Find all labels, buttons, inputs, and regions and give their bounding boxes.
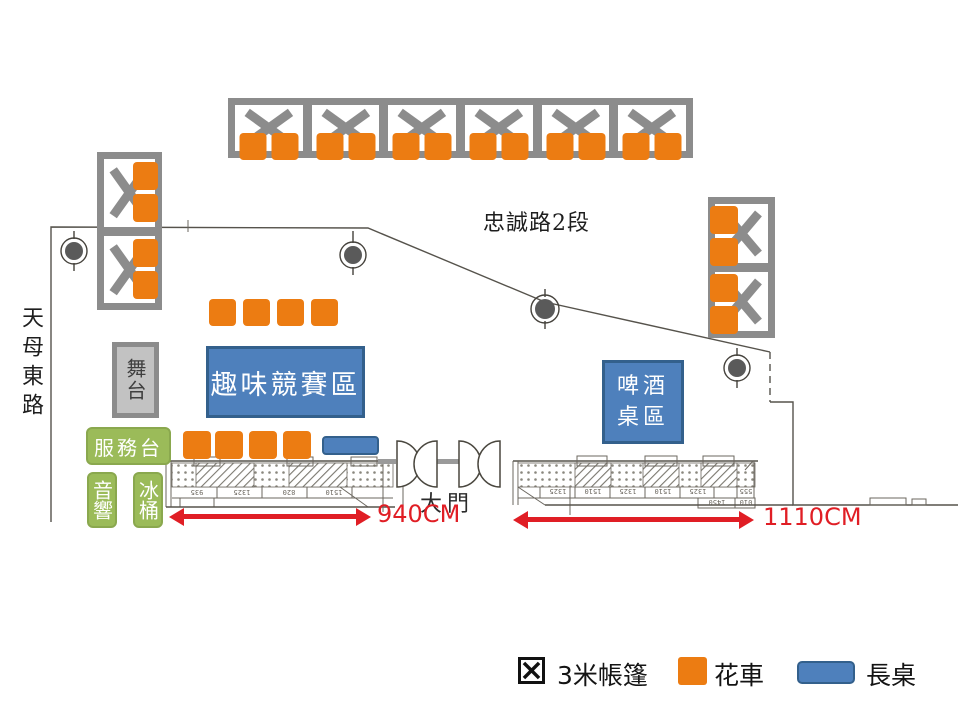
flower-cart [215,431,243,459]
stage-box: 舞台 [112,342,159,418]
scan-number: 1510 [655,487,672,495]
service-desk-box: 服務台 [86,427,171,465]
flower-cart [655,133,682,160]
legend-flower-cart-label: 花車 [714,656,764,692]
flower-cart-pair [239,133,298,160]
scan-number: 935 [191,488,204,496]
tent [104,159,155,227]
scan-number: 820 [283,488,296,496]
ice-bucket-box: 冰桶 [133,472,163,528]
ice-bucket-label: 冰桶 [134,480,163,520]
flower-cart [623,133,650,160]
flower-cart [425,133,452,160]
measure-label-left: 940CM [377,500,460,528]
flower-cart [501,133,528,160]
measure-arrow-right [528,517,739,522]
legend-long-table-icon [797,661,855,684]
flower-cart [243,299,270,326]
tent [312,105,380,151]
flower-cart [209,299,236,326]
flower-cart [271,133,298,160]
flower-cart [311,299,338,326]
flower-cart [183,431,211,459]
flower-cart [239,133,266,160]
scan-number: 1450 [709,498,726,506]
tent [542,105,610,151]
flower-cart [348,133,375,160]
tent [715,204,768,263]
tree [724,348,750,388]
beer-zone-box: 啤酒 桌區 [602,360,684,444]
flower-cart [133,194,158,222]
flower-cart-pair [133,239,158,299]
flower-cart-pair [623,133,682,160]
legend-flower-cart-icon [678,657,707,685]
flower-cart-pair [710,274,738,334]
flower-cart [469,133,496,160]
tent-row-north [228,98,693,158]
tent [104,236,155,304]
flower-cart [710,238,738,266]
legend-tent-label: 3米帳篷 [557,656,648,692]
tent-column-east [708,197,775,338]
scan-number: 1510 [326,488,343,496]
legend-tent-x-icon [521,660,542,681]
scan-number: 1325 [620,487,637,495]
game-zone-label: 趣味競賽區 [211,363,361,402]
tent-column-west [97,152,162,310]
scan-number: 1325 [234,488,251,496]
tent [618,105,686,151]
tree [340,231,366,275]
audio-box: 音響 [87,472,117,528]
scan-number: 010 [740,498,753,506]
flower-cart-pair [393,133,452,160]
flower-cart [710,206,738,234]
road-label-zhongcheng: 忠誠路2段 [483,205,590,237]
flower-cart-pair [710,206,738,266]
flower-cart-pair [546,133,605,160]
tent [388,105,456,151]
legend-long-table-label: 長桌 [866,656,916,692]
beer-zone-label-line2: 桌區 [617,402,669,433]
flower-cart [133,239,158,267]
tent [715,272,768,331]
service-desk-label: 服務台 [94,432,163,461]
flower-cart [710,274,738,302]
flower-cart [316,133,343,160]
stage-label: 舞台 [121,358,150,402]
flower-cart [249,431,277,459]
flower-cart-pair [133,162,158,222]
measure-arrow-left [184,514,356,519]
event-site-plan-slide: 935 1325 820 1510 1325 1510 1325 1510 13… [0,0,960,720]
flower-cart-pair [316,133,375,160]
flower-cart [393,133,420,160]
flower-cart-pair [469,133,528,160]
tent [235,105,303,151]
flower-cart [546,133,573,160]
road-label-tianmu: 天母東路 [14,306,46,422]
long-table [322,436,379,455]
tent [465,105,533,151]
legend-tent-icon [518,657,545,684]
scan-number: 1325 [690,487,707,495]
tree [61,231,87,271]
scan-number: 555 [740,487,753,495]
flower-cart [133,271,158,299]
beer-zone-label-line1: 啤酒 [617,371,669,402]
scan-number: 1510 [585,487,602,495]
flower-cart [578,133,605,160]
flower-cart [277,299,304,326]
tree [531,289,559,329]
game-zone-box: 趣味競賽區 [206,346,365,418]
beer-zone-label: 啤酒 桌區 [617,371,669,433]
scan-number: 1325 [550,487,567,495]
measure-label-right: 1110CM [763,503,862,531]
flower-cart [283,431,311,459]
audio-label: 音響 [88,480,117,520]
flower-cart [133,162,158,190]
flower-cart [710,306,738,334]
